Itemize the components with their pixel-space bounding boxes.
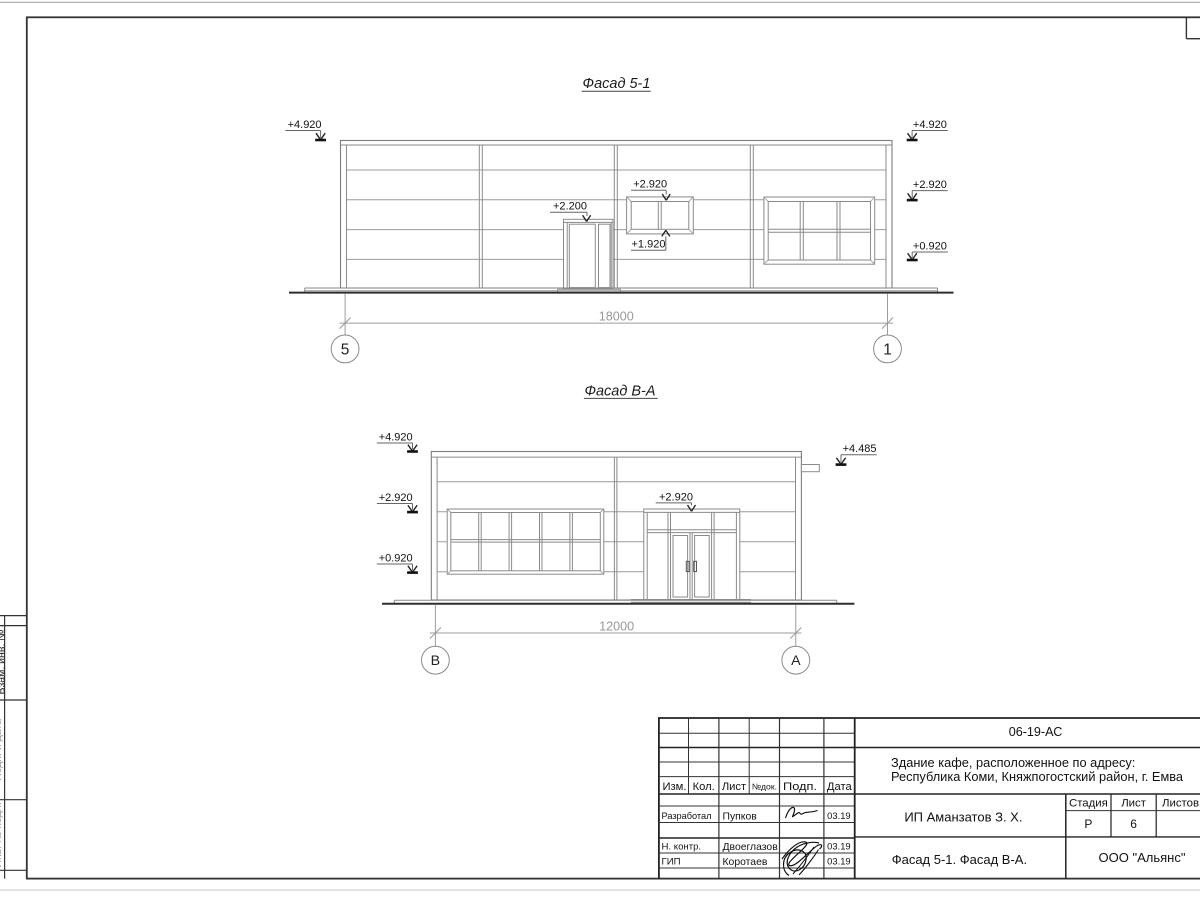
- svg-text:+0.920: +0.920: [913, 240, 947, 252]
- svg-text:Дата: Дата: [827, 781, 853, 793]
- svg-text:03.19: 03.19: [827, 841, 850, 852]
- svg-text:+2.920: +2.920: [379, 492, 413, 504]
- svg-text:ООО "Альянс": ООО "Альянс": [1099, 850, 1186, 865]
- svg-text:5: 5: [341, 341, 350, 358]
- svg-text:Республика Коми, Княжпогостски: Республика Коми, Княжпогостский район, г…: [891, 769, 1184, 784]
- svg-text:В: В: [431, 653, 440, 669]
- svg-text:А: А: [791, 653, 801, 669]
- svg-text:6: 6: [1130, 817, 1137, 831]
- svg-text:Лист: Лист: [722, 781, 746, 793]
- svg-text:+2.200: +2.200: [553, 201, 587, 213]
- svg-text:Лист: Лист: [1121, 797, 1147, 809]
- svg-text:Фасад 5-1: Фасад 5-1: [583, 76, 651, 92]
- svg-text:Пупков: Пупков: [723, 811, 758, 822]
- svg-text:+4.485: +4.485: [843, 443, 877, 455]
- svg-text:18000: 18000: [599, 310, 634, 324]
- svg-text:Подп. и дата: Подп. и дата: [0, 719, 4, 781]
- svg-text:Разработал: Разработал: [662, 811, 712, 821]
- svg-text:+4.920: +4.920: [288, 119, 322, 131]
- svg-text:+4.920: +4.920: [913, 119, 947, 131]
- svg-text:+2.920: +2.920: [633, 179, 667, 191]
- svg-text:Стадия: Стадия: [1069, 797, 1108, 809]
- svg-text:Р: Р: [1084, 817, 1092, 831]
- svg-text:Инв. № подл.: Инв. № подл.: [0, 802, 4, 867]
- svg-text:ГИП: ГИП: [662, 857, 681, 868]
- svg-text:03.19: 03.19: [827, 856, 850, 867]
- svg-text:+4.920: +4.920: [379, 431, 413, 443]
- svg-text:06-19-АС: 06-19-АС: [1009, 725, 1063, 739]
- svg-text:+0.920: +0.920: [379, 552, 413, 564]
- svg-text:Изм.: Изм.: [663, 781, 687, 793]
- svg-text:Здание кафе, расположенное по: Здание кафе, расположенное по адресу:: [891, 755, 1135, 770]
- svg-text:Листов: Листов: [1162, 797, 1199, 809]
- svg-text:№док.: №док.: [752, 782, 777, 792]
- svg-text:Подп.: Подп.: [783, 781, 817, 793]
- svg-text:Фасад 5-1. Фасад В-А.: Фасад 5-1. Фасад В-А.: [892, 852, 1027, 867]
- svg-text:+2.920: +2.920: [913, 179, 947, 191]
- svg-text:Н. контр.: Н. контр.: [662, 842, 702, 853]
- svg-text:03.19: 03.19: [827, 810, 850, 821]
- svg-text:Фасад В-А: Фасад В-А: [584, 383, 655, 399]
- svg-text:12000: 12000: [599, 619, 634, 633]
- svg-text:ИП Аманзатов З. Х.: ИП Аманзатов З. Х.: [904, 809, 1022, 824]
- svg-text:Двоеглазов: Двоеглазов: [723, 842, 779, 853]
- svg-text:Кол.: Кол.: [693, 781, 715, 793]
- svg-text:Коротаев: Коротаев: [723, 857, 768, 868]
- svg-text:1: 1: [883, 341, 892, 358]
- svg-text:Взам. инв. №: Взам. инв. №: [0, 629, 7, 694]
- svg-text:+1.920: +1.920: [632, 239, 666, 251]
- svg-text:+2.920: +2.920: [659, 492, 693, 504]
